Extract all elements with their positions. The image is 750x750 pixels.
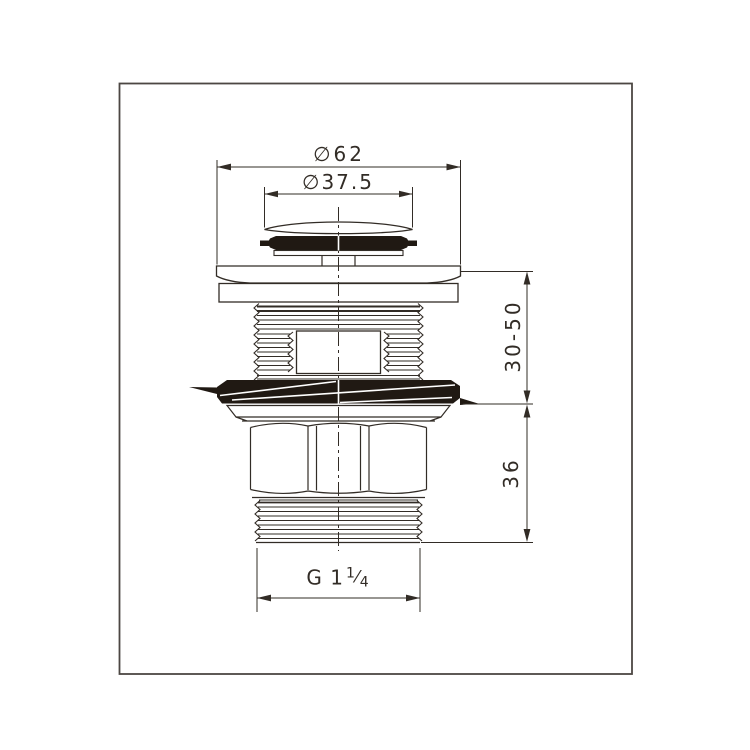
drawing-canvas: ∅62 ∅37.5 30-50 36 G 11⁄4 xyxy=(0,0,750,750)
dim-36-arrow-up xyxy=(524,405,531,418)
dim-label-thread-size: G 11⁄4 xyxy=(306,566,369,591)
dim-30-50-arrow-down xyxy=(524,391,531,404)
thread-size-fraction-numerator: 1 xyxy=(346,566,356,582)
thread-size-prefix: G 1 xyxy=(306,566,344,590)
dim-37-5-arrow-left xyxy=(265,191,279,197)
dim-label-outer-diameter: ∅62 xyxy=(313,142,365,166)
gasket-left-tail xyxy=(189,387,217,394)
dim-g114-arrow-left xyxy=(257,595,271,602)
dim-37-5-arrow-right xyxy=(399,191,413,197)
cap-seal-left-tab xyxy=(260,241,269,247)
dim-g114-arrow-right xyxy=(406,595,420,602)
dim-36-arrow-down xyxy=(524,529,531,542)
dim-62-arrow-left xyxy=(217,164,231,171)
dim-label-adjustable-height: 30-50 xyxy=(501,299,525,372)
dim-label-lower-height: 36 xyxy=(499,457,523,488)
thread-size-fraction-denominator: 4 xyxy=(360,575,370,591)
cap-seal-right-tab xyxy=(408,241,417,247)
dim-label-cap-diameter: ∅37.5 xyxy=(302,170,374,194)
technical-drawing-svg xyxy=(0,0,750,750)
dim-30-50-arrow-up xyxy=(524,272,531,285)
dim-62-arrow-right xyxy=(447,164,461,171)
